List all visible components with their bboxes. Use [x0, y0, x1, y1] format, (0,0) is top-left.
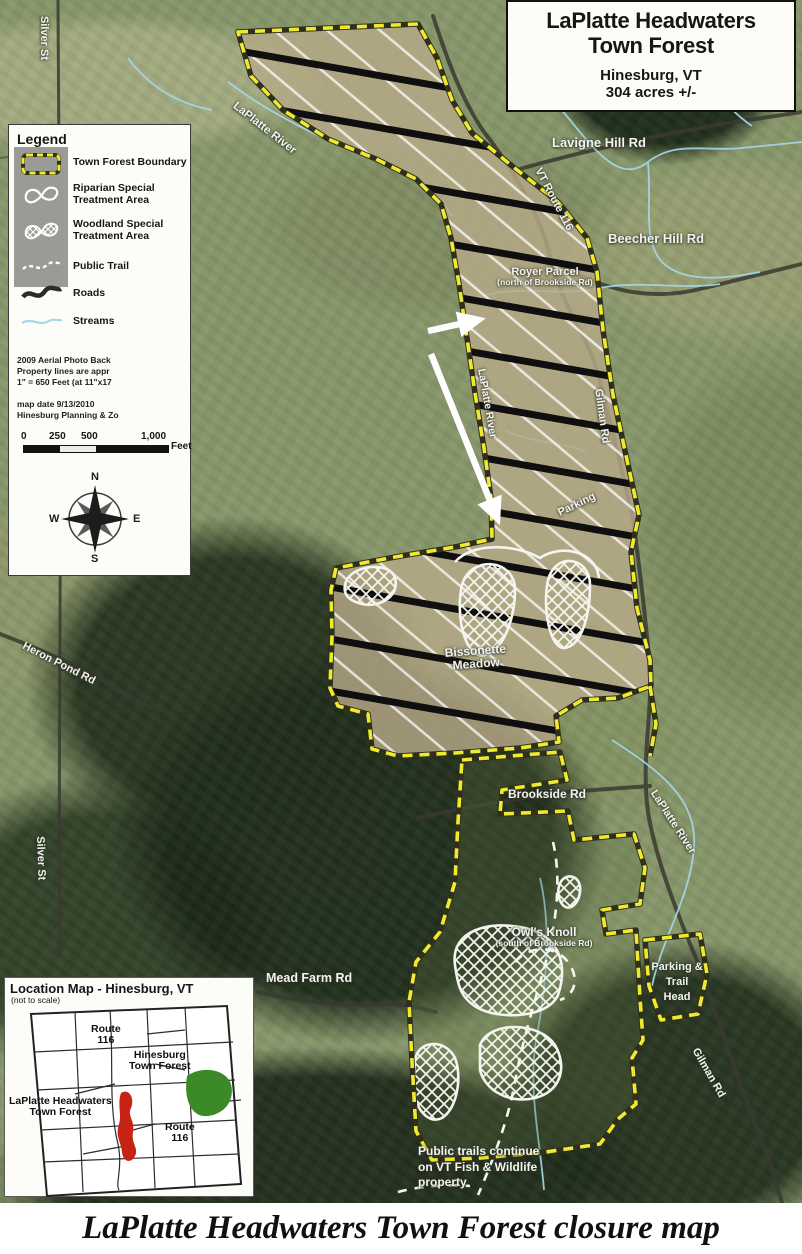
label-brookside-rd: Brookside Rd: [508, 788, 586, 801]
label-mead-farm-rd: Mead Farm Rd: [266, 972, 352, 986]
woodland-area: [413, 1044, 458, 1120]
scale-bar: 0 250 500 1,000 Feet: [19, 431, 185, 467]
caption-bar: LaPlatte Headwaters Town Forest closure …: [0, 1203, 802, 1254]
streams-icon: [18, 311, 64, 331]
town-forest-boundary-icon: [18, 151, 64, 177]
woodland-area: [480, 1027, 561, 1099]
caption-text: LaPlatte Headwaters Town Forest closure …: [82, 1210, 720, 1247]
map-title-acreage: 304 acres +/-: [508, 84, 794, 101]
map-title-line1: LaPlatte Headwaters: [508, 9, 794, 34]
map-title-city: Hinesburg, VT: [508, 67, 794, 84]
compass-rose: N E S W: [49, 473, 141, 565]
label-royer-parcel: Royer Parcel (north of Brookside Rd): [478, 266, 612, 287]
legend-heading: Legend: [17, 131, 67, 147]
loc-label-route116-top: Route 116: [91, 1024, 121, 1046]
scale-bar-graphic: [23, 445, 169, 453]
legend: Legend Town Forest Boundary Riparian Spe…: [8, 124, 191, 576]
label-silver-st-top: Silver St: [38, 16, 50, 60]
loc-label-route116-bottom: Route 116: [165, 1122, 195, 1144]
scale-unit: Feet: [171, 441, 192, 452]
roads-icon: [18, 281, 64, 305]
legend-notes-source: 2009 Aerial Photo Back Property lines ar…: [17, 355, 112, 388]
compass-n: N: [91, 471, 99, 483]
title-box: LaPlatte Headwaters Town Forest Hinesbur…: [506, 0, 796, 112]
legend-label-boundary: Town Forest Boundary: [73, 157, 187, 169]
public-trail-icon: [18, 255, 64, 275]
legend-label-riparian: Riparian Special Treatment Area: [73, 183, 155, 206]
scale-tick-250: 250: [49, 431, 66, 442]
closure-map-page: Silver St LaPlatte River Lavigne Hill Rd…: [0, 0, 802, 1254]
loc-label-laplatte-forest: LaPlatte Headwaters Town Forest: [9, 1096, 112, 1118]
label-parking-trail-head: Parking & Trail Head: [640, 960, 714, 1005]
riparian-area-icon: [18, 181, 64, 211]
compass-s: S: [91, 553, 98, 565]
legend-label-trail: Public Trail: [73, 261, 129, 273]
label-owls-knoll: Owl's Knoll (south of Brookside Rd): [468, 926, 620, 949]
legend-label-roads: Roads: [73, 288, 105, 300]
label-beecher-hill-rd: Beecher Hill Rd: [608, 232, 704, 246]
location-map: Location Map - Hinesburg, VT (not to sca…: [4, 977, 254, 1197]
legend-notes-date: map date 9/13/2010 Hinesburg Planning & …: [17, 399, 119, 421]
woodland-area-icon: [18, 217, 64, 247]
compass-w: W: [49, 513, 59, 525]
label-silver-st-bottom: Silver St: [34, 836, 48, 880]
scale-tick-0: 0: [21, 431, 27, 442]
aerial-map: Silver St LaPlatte River Lavigne Hill Rd…: [0, 0, 802, 1203]
compass-star: [49, 473, 141, 565]
woodland-area: [345, 567, 396, 605]
location-map-title: Location Map - Hinesburg, VT: [10, 981, 193, 996]
scale-tick-1000: 1,000: [141, 431, 166, 442]
compass-e: E: [133, 513, 140, 525]
legend-label-streams: Streams: [73, 316, 114, 328]
label-public-trails-note: Public trails continue on VT Fish & Wild…: [418, 1144, 539, 1191]
riparian-area: [558, 876, 580, 907]
scale-tick-500: 500: [81, 431, 98, 442]
label-lavigne-hill-rd: Lavigne Hill Rd: [552, 136, 646, 150]
legend-label-woodland: Woodland Special Treatment Area: [73, 219, 163, 242]
map-title-line2: Town Forest: [508, 34, 794, 59]
loc-label-hinesburg-forest: Hinesburg Town Forest: [129, 1050, 191, 1072]
